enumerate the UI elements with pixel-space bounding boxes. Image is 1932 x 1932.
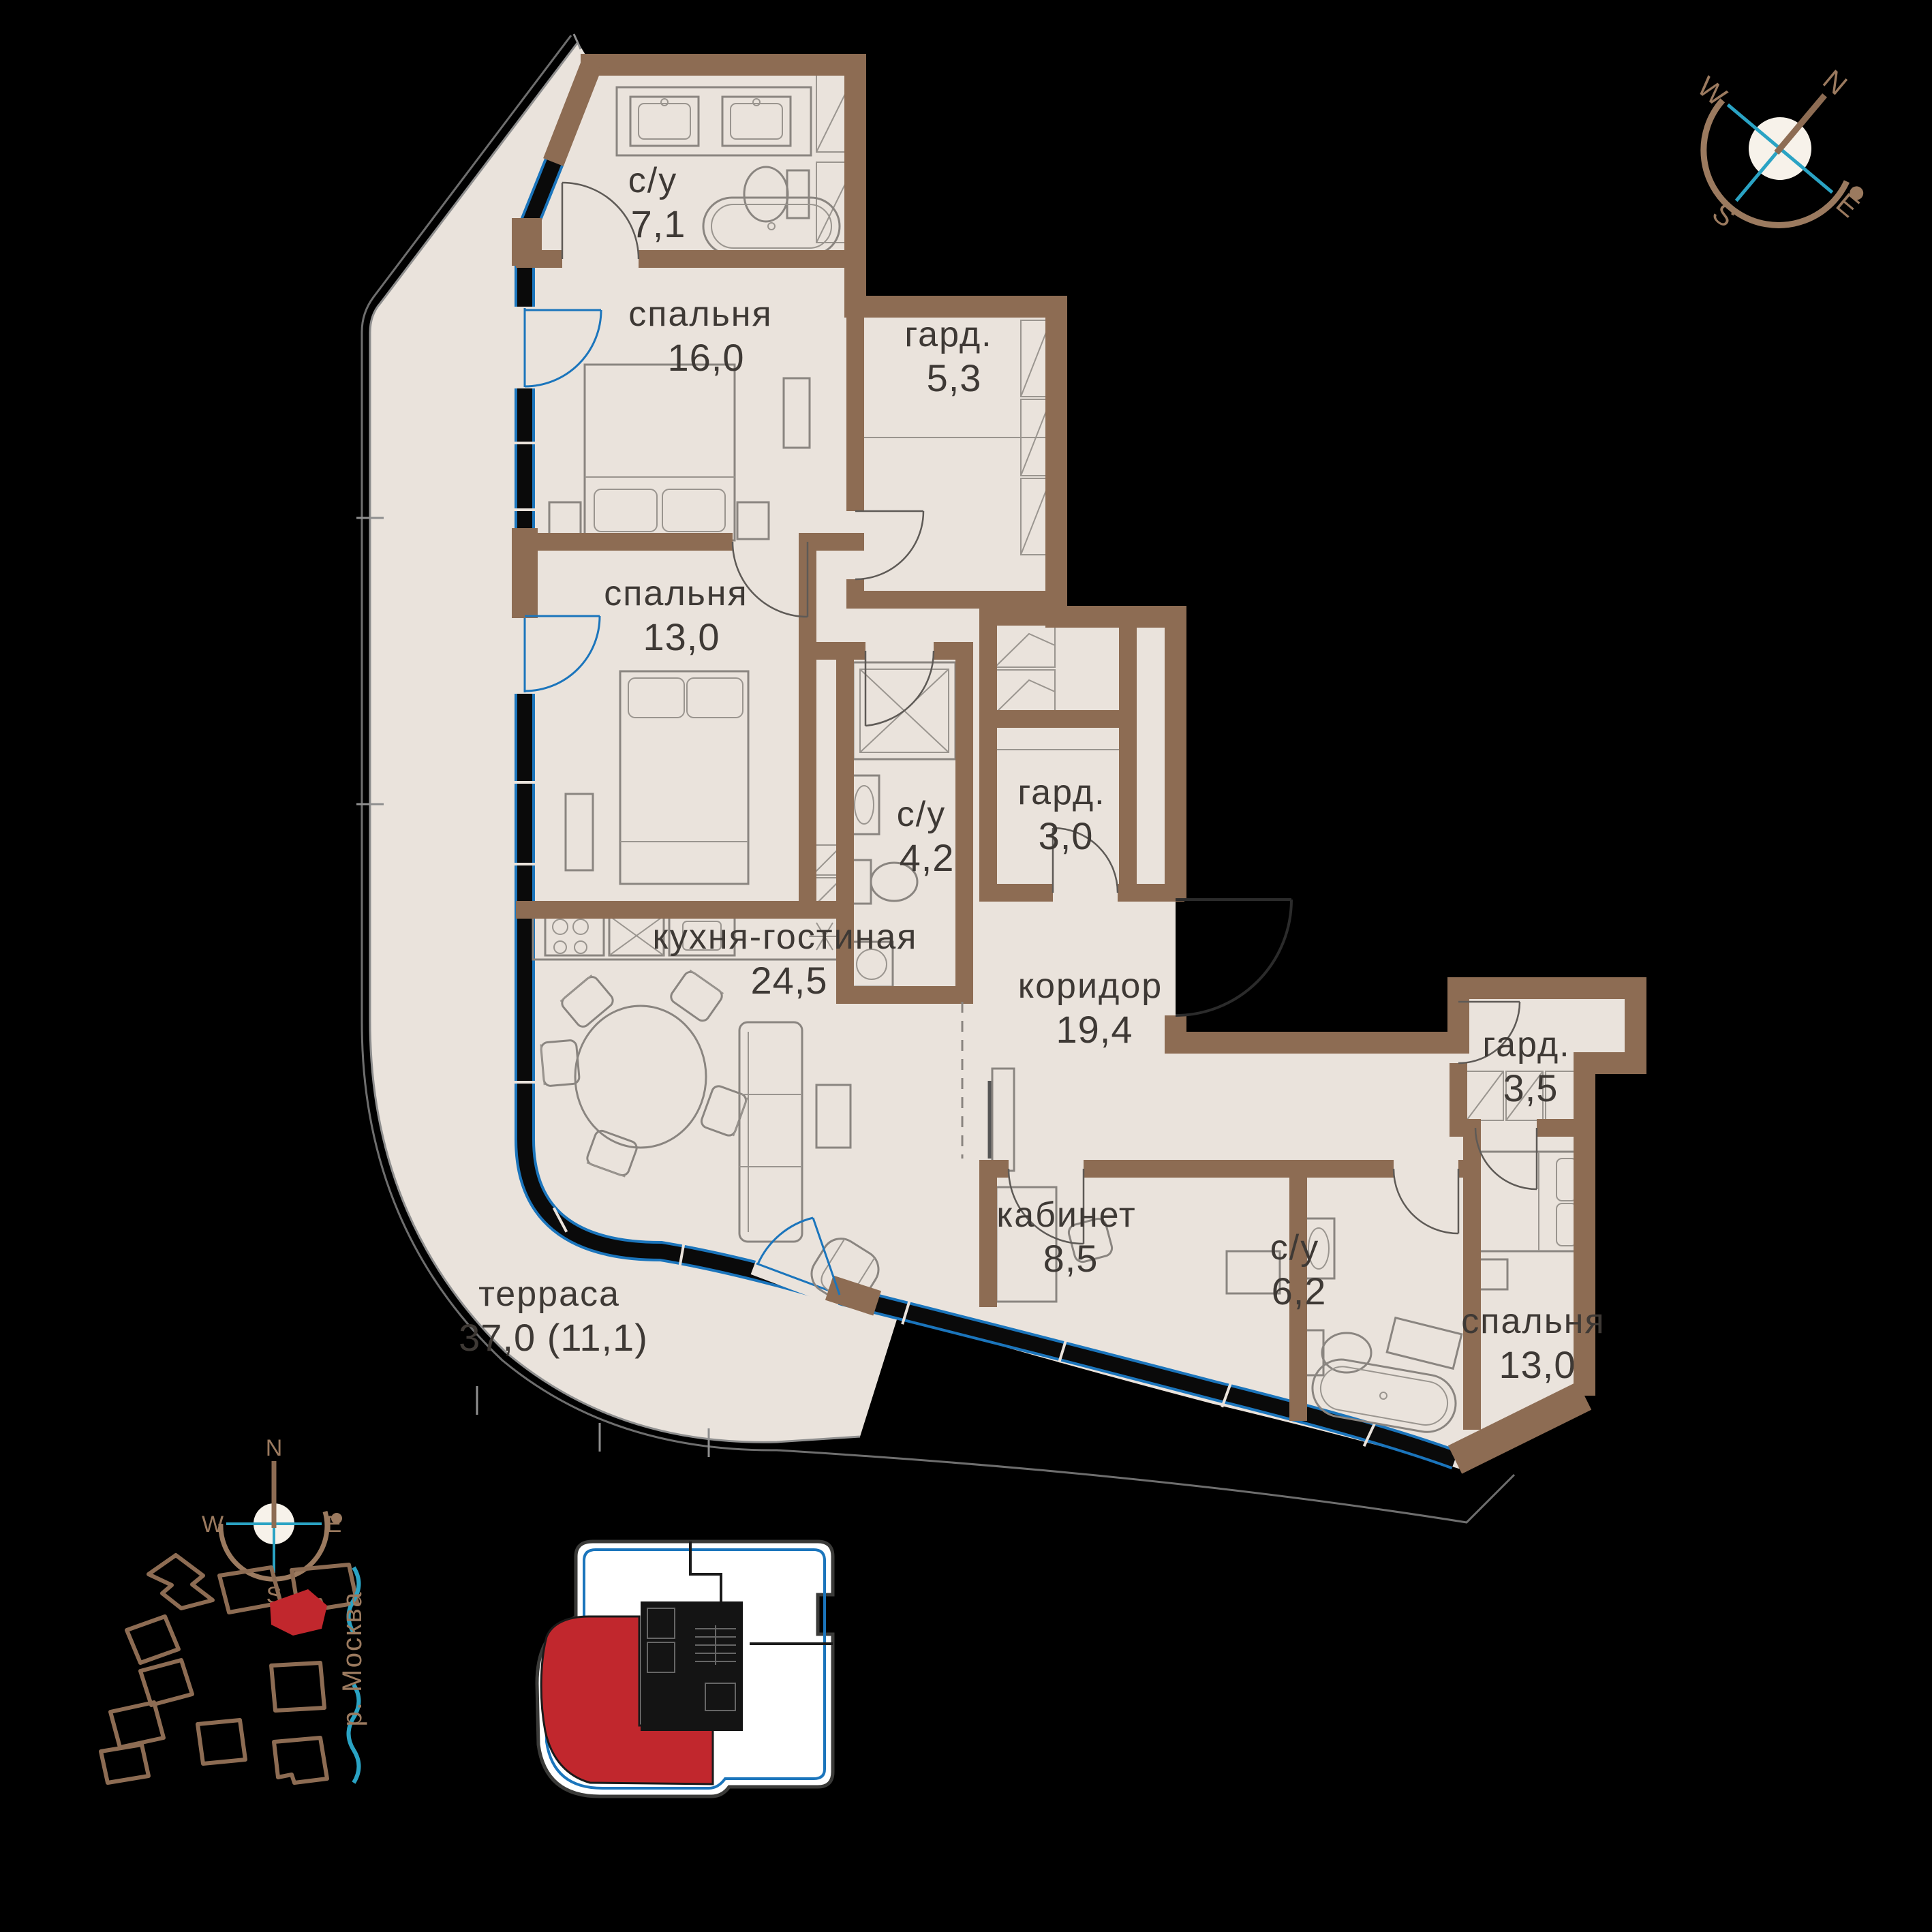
svg-text:5,3: 5,3	[927, 356, 982, 399]
svg-text:16,0: 16,0	[668, 336, 745, 379]
svg-text:4,2: 4,2	[900, 836, 955, 879]
svg-text:3,5: 3,5	[1503, 1067, 1559, 1109]
site-plan: N W E S р. Москва	[101, 1435, 367, 1783]
wall-stub	[512, 528, 538, 618]
floor-key-core	[641, 1601, 743, 1731]
svg-text:коридор: коридор	[1018, 966, 1163, 1006]
svg-text:24,5: 24,5	[751, 959, 828, 1002]
svg-text:терраса: терраса	[478, 1274, 620, 1314]
svg-text:13,0: 13,0	[643, 615, 720, 658]
svg-text:6,2: 6,2	[1272, 1270, 1327, 1313]
room-label-bathroom-1: с/у 7,1	[628, 161, 686, 245]
floor-key-plan	[537, 1542, 833, 1796]
svg-text:37,0 (11,1): 37,0 (11,1)	[459, 1316, 648, 1359]
room-label-bathroom-2: с/у 4,2	[897, 795, 955, 879]
floor-plan-page: с/у 7,1 спальня 16,0 гард. 5,3 спальня 1…	[0, 0, 1932, 1932]
site-compass-n-label: N	[266, 1435, 283, 1461]
door-entry	[1176, 900, 1291, 1015]
svg-text:с/у: с/у	[628, 161, 677, 200]
svg-text:19,4: 19,4	[1056, 1008, 1133, 1051]
svg-text:спальня: спальня	[1461, 1302, 1605, 1341]
svg-text:кабинет: кабинет	[996, 1195, 1136, 1235]
compass-rose: N W E S	[1636, 4, 1921, 290]
site-river: р. Москва	[337, 1567, 367, 1783]
site-buildings	[101, 1555, 357, 1783]
svg-text:с/у: с/у	[897, 795, 946, 834]
svg-text:гард.: гард.	[1017, 773, 1105, 812]
svg-text:гард.: гард.	[904, 315, 992, 354]
svg-text:спальня: спальня	[628, 294, 772, 334]
svg-text:спальня: спальня	[604, 574, 748, 613]
floor-plan-canvas: с/у 7,1 спальня 16,0 гард. 5,3 спальня 1…	[0, 0, 1932, 1932]
svg-text:кухня-гостиная: кухня-гостиная	[653, 917, 918, 957]
site-compass-w-label: W	[202, 1512, 224, 1537]
room-label-terrace: терраса 37,0 (11,1)	[459, 1274, 648, 1359]
svg-text:7,1: 7,1	[631, 202, 686, 245]
svg-text:8,5: 8,5	[1043, 1237, 1099, 1280]
compass-s-label: S	[1706, 196, 1742, 234]
svg-text:с/у: с/у	[1270, 1228, 1319, 1268]
svg-text:13,0: 13,0	[1499, 1343, 1576, 1386]
svg-text:гард.: гард.	[1482, 1025, 1570, 1064]
svg-text:3,0: 3,0	[1039, 814, 1094, 857]
room-label-bathroom-3: с/у 6,2	[1270, 1228, 1327, 1313]
wall-stub	[512, 218, 542, 266]
river-label: р. Москва	[337, 1591, 367, 1726]
site-compass-e-label: E	[326, 1512, 342, 1537]
